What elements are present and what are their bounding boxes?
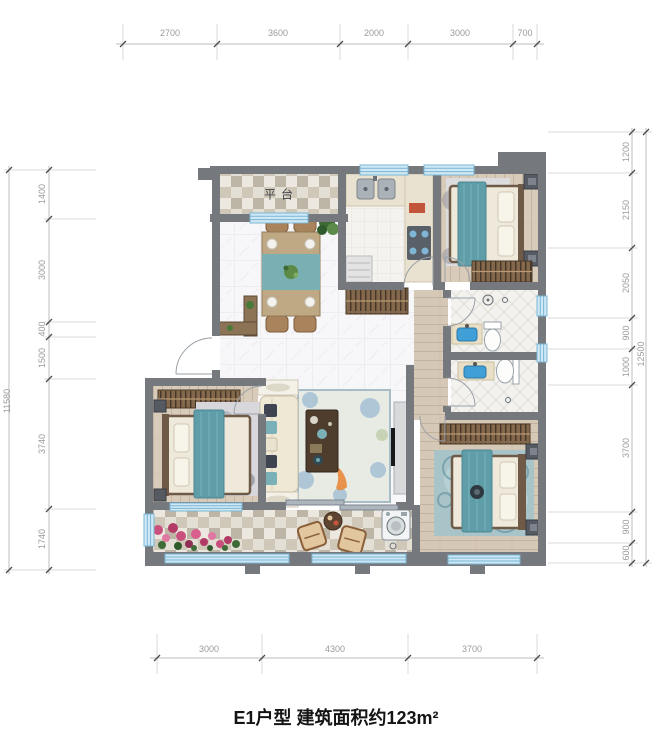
dim-label-right-4: 900 [621,325,631,340]
floorplan-canvas: 2700 3600 2000 3000 700 3000 4300 3700 1… [0,0,672,747]
toilet [484,322,501,351]
bed [450,182,524,266]
dim-label-top-4: 3000 [450,28,470,38]
hallway-floor [414,290,448,420]
dim-label-right-8: 600 [621,545,631,560]
dim-label-left-overall: 11580 [2,389,12,413]
bed [162,410,250,498]
window [312,554,406,563]
dim-label-left-5: 3740 [37,434,47,454]
wardrobe [440,424,530,444]
toilet [497,358,520,384]
dining-set [262,216,320,332]
floorplan-drawing [0,0,672,747]
bathroom-sink [458,362,494,380]
tv [391,428,395,466]
dim-label-right-1: 1200 [621,142,631,162]
plan-title: E1户型 建筑面积约123m² [233,704,438,730]
window [424,165,474,175]
window [537,296,547,316]
bed [452,450,526,532]
dim-label-right-overall: 12500 [636,341,646,366]
dim-label-top-5: 700 [517,28,532,38]
living-room [258,380,407,507]
coffee-table [306,410,338,472]
dim-label-right-5: 1000 [621,357,631,377]
window [165,554,289,563]
dim-label-right-3: 2050 [621,273,631,293]
dim-label-left-3: 400 [37,321,47,336]
balcony-table [324,512,342,530]
nightstand [154,400,166,412]
nightstand [154,489,166,501]
lounge-chair [337,525,366,554]
dim-label-bottom-3: 3700 [462,644,482,654]
dim-label-bottom-1: 3000 [199,644,219,654]
bedroom-bottomleft [154,390,264,501]
window [448,555,520,564]
window [537,344,547,362]
window [250,213,308,223]
dim-label-left-6: 1740 [37,529,47,549]
dim-label-bottom-2: 4300 [325,644,345,654]
entry-door [176,338,212,374]
kitchen-small-appliance [409,203,425,213]
window [170,503,242,511]
dim-label-left-4: 1500 [37,348,47,368]
dim-label-top-3: 2000 [364,28,384,38]
dim-label-top-1: 2700 [160,28,180,38]
dim-label-left-2: 3000 [37,260,47,280]
stove [407,226,431,260]
dim-label-right-6: 3700 [621,438,631,458]
bathroom-sink [452,324,482,344]
bedroom-bottomright [434,424,541,536]
platform-label: 平台 [264,186,298,203]
dim-label-top-2: 3600 [268,28,288,38]
kitchen-mat [346,256,372,282]
dim-label-left-1: 1400 [37,184,47,204]
nightstand [524,174,540,189]
dim-label-right-2: 2150 [621,200,631,220]
dim-label-right-7: 900 [621,519,631,534]
window [144,514,154,546]
wardrobe [472,261,532,282]
window [360,165,408,175]
hall-cabinet [346,288,408,314]
